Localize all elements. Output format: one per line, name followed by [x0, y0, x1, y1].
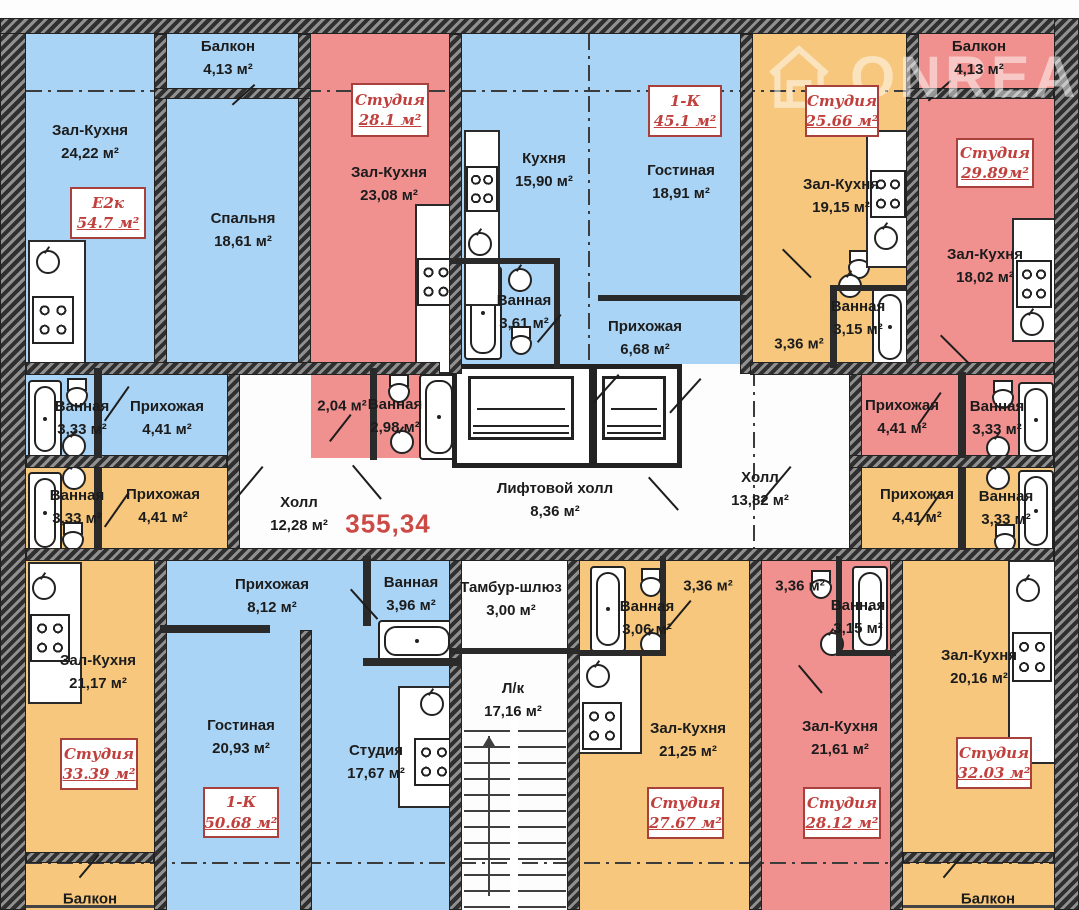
elevator-car [602, 376, 666, 440]
room-label: Прихожая6,68 м² [608, 315, 682, 362]
kitchen-sink-icon [1020, 312, 1044, 336]
wall [567, 556, 580, 910]
apartment-badge: Студия28.12 м² [803, 787, 881, 839]
partition [160, 625, 270, 633]
room-label: 3,36 м² [775, 574, 824, 597]
partition [363, 658, 462, 666]
room-label: Прихожая4,41 м² [880, 483, 954, 530]
kitchen-sink-icon [586, 664, 610, 688]
room-label: Холл12,28 м² [270, 491, 328, 538]
room-label: Холл13,82 м² [731, 466, 789, 513]
room-label: Балкон [63, 887, 117, 910]
room-label: Зал-Кухня20,16 м² [941, 644, 1017, 691]
room-label: Зал-Кухня19,15 м² [803, 173, 879, 220]
room-label: Кухня15,90 м² [515, 147, 573, 194]
room-label: Тамбур-шлюз3,00 м² [460, 576, 562, 623]
kitchen-counter [464, 130, 500, 306]
room-label: Зал-Кухня21,17 м² [60, 649, 136, 696]
room-label: Ванная2,98 м² [368, 393, 422, 440]
stairs-divider [510, 716, 518, 910]
wall [154, 88, 311, 99]
apartment-badge: Студия27.67 м² [647, 787, 724, 839]
wall [749, 556, 762, 910]
wall [0, 18, 26, 910]
wall [298, 34, 311, 374]
partition [449, 648, 580, 654]
kitchen-sink-icon [874, 226, 898, 250]
wall [0, 18, 1079, 34]
apartment-badge: Студия28.1 м² [351, 83, 429, 137]
total-area-label: 355,34 [345, 509, 431, 540]
room-label: 3,36 м² [683, 574, 732, 597]
wall [26, 455, 227, 468]
partition [836, 650, 896, 656]
room-label: Зал-Кухня23,08 м² [351, 161, 427, 208]
apartment-badge: 1-К50.68 м² [203, 787, 279, 838]
door [648, 477, 679, 511]
apartment-badge: Студия32.03 м² [956, 737, 1032, 789]
room-label: Зал-Кухня18,02 м² [947, 243, 1023, 290]
stove-icon [414, 738, 454, 786]
room-label: Прихожая4,41 м² [126, 483, 200, 530]
room-label: Ванная3,33 м² [970, 395, 1024, 442]
room-label: Ванная3,61 м² [497, 289, 551, 336]
wall [26, 548, 1054, 561]
stove-icon [1012, 632, 1052, 682]
wall [849, 455, 1054, 468]
wall [227, 368, 240, 560]
room-label: Прихожая4,41 м² [865, 394, 939, 441]
stove-icon [32, 296, 74, 344]
wall [26, 362, 440, 375]
partition [363, 556, 371, 626]
kitchen-sink-icon [420, 692, 444, 716]
wall [903, 852, 1054, 863]
room-label: Ванная3,15 м² [831, 594, 885, 641]
section-line-kitchen [588, 34, 590, 364]
toilet [640, 568, 658, 595]
stairs-arrow [488, 736, 490, 896]
elevator-car [468, 376, 574, 440]
room-label: Прихожая8,12 м² [235, 573, 309, 620]
kitchen-sink-icon [36, 250, 60, 274]
room-label: Лифтовой холл8,36 м² [497, 477, 613, 524]
wall [154, 556, 167, 910]
apartment-badge: Студия29.89м² [956, 138, 1034, 188]
kitchen-sink-icon [32, 576, 56, 600]
partition [598, 295, 746, 301]
partition [449, 258, 560, 264]
room-label: 2,04 м² [317, 394, 366, 417]
room-label: Зал-Кухня21,61 м² [802, 715, 878, 762]
wall [750, 362, 1054, 375]
wall [740, 34, 753, 374]
room-label: Л/к17,16 м² [484, 677, 542, 724]
room-label: Гостиная20,93 м² [207, 714, 275, 761]
apartment-badge: Студия25.66 м² [805, 85, 879, 137]
room-label: Ванная3,96 м² [384, 571, 438, 618]
wall [1054, 18, 1079, 910]
stove-icon [582, 702, 622, 750]
partition [958, 372, 966, 458]
room-label: Ванная3,33 м² [55, 395, 109, 442]
kitchen-sink-icon [468, 232, 492, 256]
stove-icon [466, 166, 498, 212]
room-label: Гостиная18,91 м² [647, 159, 715, 206]
room-label: Ванная3,33 м² [979, 485, 1033, 532]
section-line-hall [753, 370, 755, 548]
kitchen-sink-icon [1016, 578, 1040, 602]
room-label: Спальня18,61 м² [211, 207, 276, 254]
door [352, 465, 382, 500]
partition [580, 650, 666, 656]
wall [449, 34, 462, 374]
floor-plan: ONREAL Зал-Кухня24,22 м² Балкон4,13 м² С… [0, 0, 1079, 910]
bathtub [378, 620, 456, 662]
room-label: Зал-Кухня24,22 м² [52, 119, 128, 166]
room-label: Студия17,67 м² [347, 739, 405, 786]
room-label: 3,36 м² [774, 332, 823, 355]
apartment-badge: 1-К45.1 м² [648, 85, 722, 137]
wall [154, 34, 167, 374]
stairs-arrowhead [483, 736, 495, 746]
room-label: Балкон [961, 887, 1015, 910]
room-label: Ванная3,33 м² [50, 484, 104, 531]
room-label: Балкон4,13 м² [201, 35, 255, 82]
wall [890, 556, 903, 910]
room-label: Ванная3,15 м² [831, 295, 885, 342]
partition [830, 285, 906, 291]
apartment-badge: Студия33.39 м² [60, 738, 138, 790]
room-label: Балкон4,13 м² [952, 35, 1006, 82]
partition [300, 630, 312, 910]
room-label: Прихожая4,41 м² [130, 395, 204, 442]
room-label: Зал-Кухня21,25 м² [650, 717, 726, 764]
partition [958, 468, 966, 550]
room-label: Ванная3,06 м² [620, 595, 674, 642]
apartment-badge: Е2к54.7 м² [70, 187, 146, 239]
